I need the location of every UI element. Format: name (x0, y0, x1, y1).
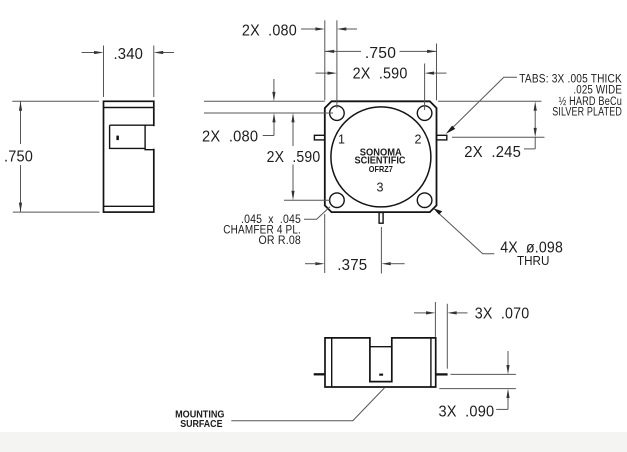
svg-text:.375: .375 (337, 257, 367, 274)
svg-text:3X .070: 3X .070 (475, 305, 530, 322)
svg-text:2X .590: 2X .590 (353, 66, 408, 83)
svg-text:1: 1 (338, 133, 345, 147)
svg-text:2X .245: 2X .245 (464, 144, 521, 161)
svg-text:2: 2 (415, 133, 422, 147)
svg-text:2X .590: 2X .590 (267, 149, 321, 166)
svg-text:SURFACE: SURFACE (180, 419, 223, 430)
svg-text:2X .080: 2X .080 (242, 22, 297, 39)
svg-text:SILVER PLATED: SILVER PLATED (552, 107, 622, 119)
svg-text:.025 WIDE: .025 WIDE (573, 84, 622, 96)
svg-text:3X .090: 3X .090 (439, 403, 495, 420)
svg-text:2X .080: 2X .080 (202, 128, 258, 145)
svg-text:.340: .340 (114, 46, 144, 63)
svg-text:3: 3 (377, 181, 384, 195)
svg-text:OFRZ7: OFRZ7 (369, 164, 393, 174)
svg-text:.750: .750 (365, 45, 396, 62)
svg-text:.750: .750 (4, 149, 33, 166)
svg-text:OR R.08: OR R.08 (259, 235, 302, 247)
svg-text:THRU: THRU (517, 254, 549, 268)
